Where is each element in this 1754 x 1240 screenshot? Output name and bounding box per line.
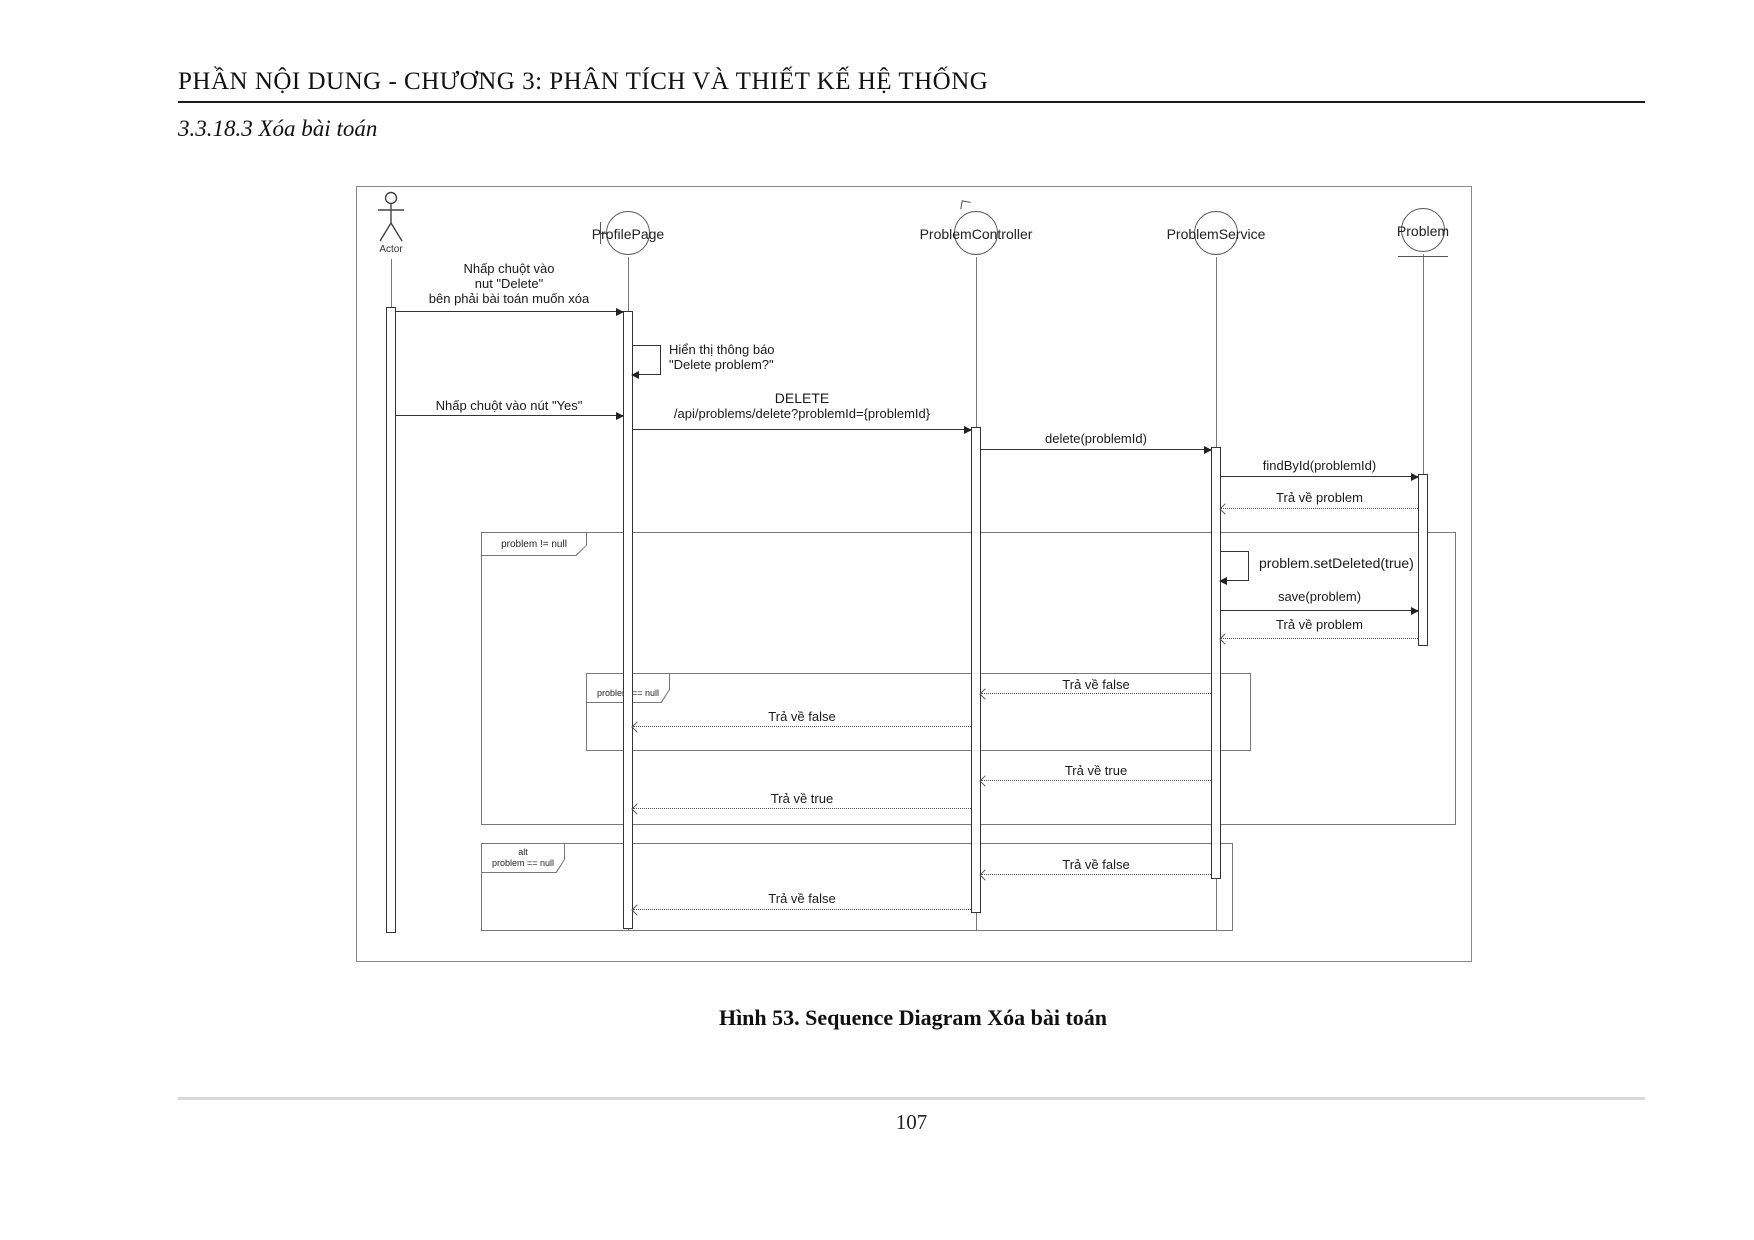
activation-actor — [386, 307, 396, 933]
return-false-1-label: Trả về false — [987, 677, 1205, 692]
participant-label-actor: Actor — [361, 244, 421, 255]
arrowhead-icon — [631, 371, 639, 379]
message-click-yes-label: Nhấp chuột vào nút "Yes" — [399, 398, 619, 413]
activation-problemservice — [1211, 447, 1221, 879]
arrowhead-icon — [1204, 446, 1212, 454]
fragment-tab: problem != null — [481, 532, 587, 556]
return-false-3-arrow — [981, 874, 1211, 875]
header-rule — [178, 101, 1645, 103]
label-line: Nhấp chuột vào — [399, 261, 619, 276]
label-line: Hiển thị thông báo — [669, 342, 879, 357]
section-title: 3.3.18.3 Xóa bài toán — [178, 116, 377, 142]
figure-caption: Hình 53. Sequence Diagram Xóa bài toán — [356, 1005, 1470, 1031]
self-message-confirm-loop — [633, 345, 661, 375]
entity-underline-icon — [1398, 256, 1448, 257]
message-save-arrow — [1221, 610, 1418, 611]
open-arrowhead-icon — [1219, 503, 1230, 514]
page-number: 107 — [178, 1110, 1645, 1135]
footer-rule — [178, 1097, 1645, 1100]
message-findbyid-arrow — [1221, 476, 1418, 477]
self-message-setdeleted-label: problem.setDeleted(true) — [1259, 556, 1489, 571]
arrowhead-icon — [1219, 577, 1227, 585]
label-line: nut "Delete" — [399, 276, 619, 291]
arrowhead-icon — [964, 426, 972, 434]
return-problem-2-label: Trả về problem — [1227, 617, 1412, 632]
return-true-2-label: Trả về true — [657, 791, 947, 806]
return-false-2-arrow — [633, 726, 971, 727]
fragment-guard: problem != null — [501, 539, 567, 550]
label-line: DELETE — [657, 391, 947, 406]
return-true-2-arrow — [633, 808, 971, 809]
control-arrow-icon — [960, 200, 970, 210]
fragment-guard: problem == null — [492, 858, 554, 869]
self-message-setdeleted-loop — [1221, 551, 1249, 581]
return-false-1-arrow — [981, 693, 1211, 694]
fragment-operator: alt — [518, 847, 528, 858]
return-true-1-label: Trả về true — [987, 763, 1205, 778]
page-header: PHẦN NỘI DUNG - CHƯƠNG 3: PHÂN TÍCH VÀ T… — [178, 68, 988, 96]
message-click-yes-arrow — [396, 415, 623, 416]
self-message-confirm-label: Hiển thị thông báo "Delete problem?" — [669, 342, 879, 372]
return-false-4-arrow — [633, 909, 971, 910]
diagram-frame: Actor ProfilePage ProblemController Prob… — [356, 186, 1472, 962]
participant-label-problemservice: ProblemService — [1141, 226, 1291, 242]
arrowhead-icon — [616, 412, 624, 420]
return-false-3-label: Trả về false — [987, 857, 1205, 872]
lifeline-actor — [391, 259, 392, 309]
activation-profilepage — [623, 311, 633, 929]
participant-label-problem: Problem — [1378, 223, 1468, 239]
participant-label-profilepage: ProfilePage — [563, 226, 693, 242]
arrowhead-icon — [1411, 473, 1419, 481]
return-true-1-arrow — [981, 780, 1211, 781]
page-canvas: PHẦN NỘI DUNG - CHƯƠNG 3: PHÂN TÍCH VÀ T… — [0, 0, 1754, 1240]
message-click-delete-arrow — [396, 311, 623, 312]
message-http-delete-arrow — [633, 429, 971, 430]
participant-label-problemcontroller: ProblemController — [901, 226, 1051, 242]
return-problem-2-arrow — [1221, 638, 1418, 639]
fragment-tab: alt problem == null — [481, 843, 565, 873]
message-findbyid-label: findById(problemId) — [1227, 458, 1412, 473]
arrowhead-icon — [1411, 607, 1419, 615]
message-http-delete-label: DELETE /api/problems/delete?problemId={p… — [657, 391, 947, 421]
label-line: /api/problems/delete?problemId={problemI… — [657, 406, 947, 421]
message-delete-call-arrow — [981, 449, 1211, 450]
label-line: bên phải bài toán muốn xóa — [399, 291, 619, 306]
return-false-2-label: Trả về false — [657, 709, 947, 724]
activation-problemcontroller — [971, 427, 981, 913]
message-delete-call-label: delete(problemId) — [987, 431, 1205, 446]
label-line: "Delete problem?" — [669, 357, 879, 372]
message-click-delete-label: Nhấp chuột vào nut "Delete" bên phải bài… — [399, 261, 619, 306]
return-false-4-label: Trả về false — [657, 891, 947, 906]
arrowhead-icon — [616, 308, 624, 316]
return-problem-1-arrow — [1221, 508, 1418, 509]
return-problem-1-label: Trả về problem — [1227, 490, 1412, 505]
message-save-label: save(problem) — [1227, 589, 1412, 604]
actor-icon — [373, 191, 409, 245]
